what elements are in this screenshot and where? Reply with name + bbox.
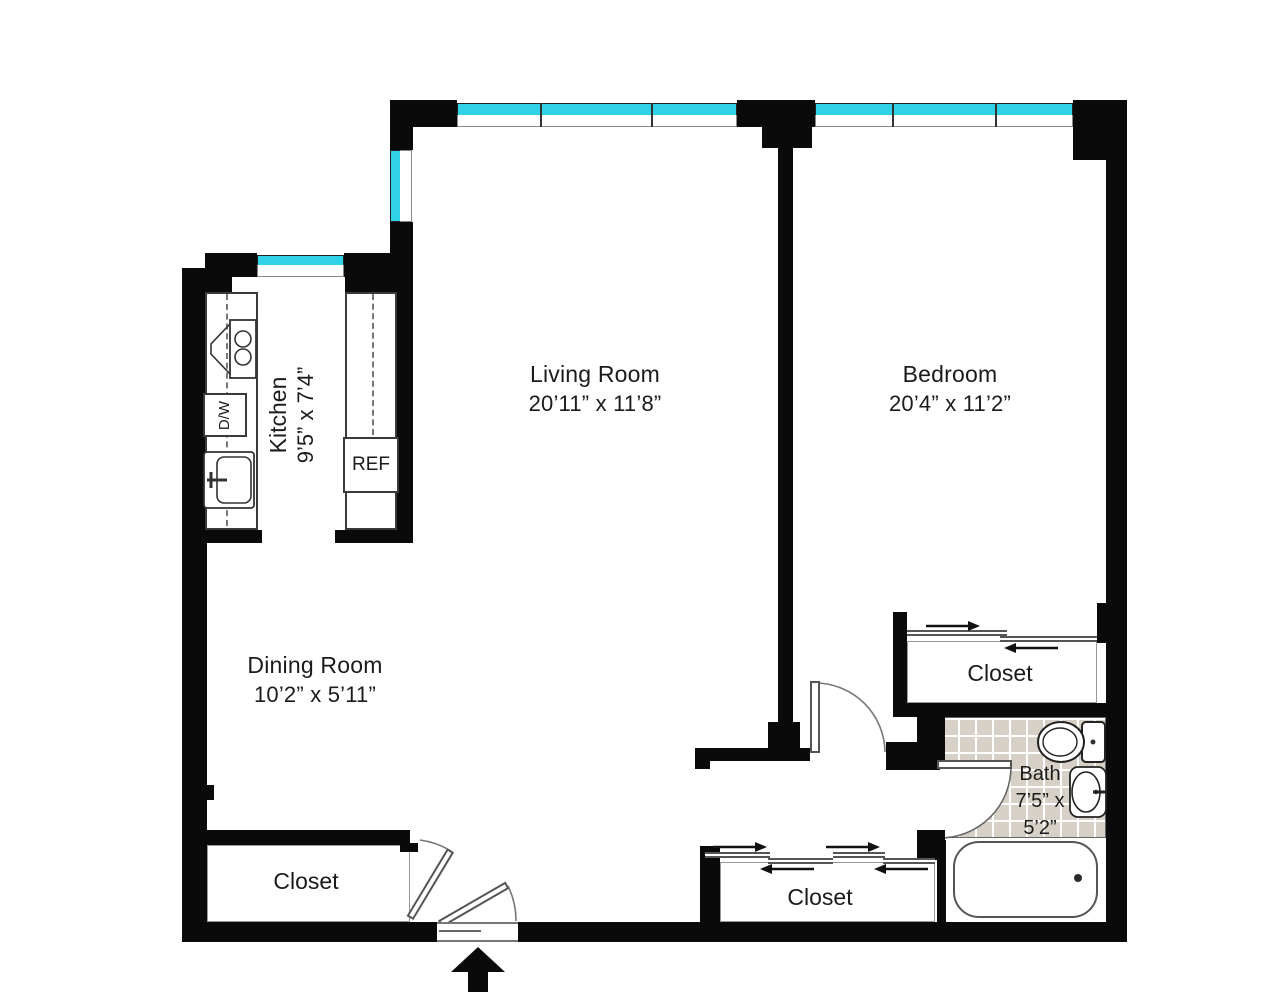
range-icon	[205, 318, 258, 380]
wall-segment	[182, 530, 262, 543]
room-name: Dining Room	[165, 651, 465, 680]
wall-segment-living-bedroom-divider	[778, 148, 793, 722]
window-mullion	[651, 103, 653, 127]
wall-segment	[903, 703, 1106, 717]
bedroom-label: Bedroom 20’4” x 11’2”	[800, 360, 1100, 418]
living-room-label: Living Room 20’11” x 11’8”	[445, 360, 745, 418]
window-mullion	[540, 103, 542, 127]
wall-segment	[1073, 127, 1106, 160]
wall-segment	[205, 253, 257, 277]
floor-plan: D/W REF L	[0, 0, 1285, 1000]
kitchen-counter-right	[345, 292, 397, 530]
room-dims-line1: 7’5” x	[980, 788, 1100, 815]
wall-segment	[344, 253, 413, 277]
slide-arrow-right-icon	[826, 841, 880, 853]
wall-segment	[205, 830, 410, 845]
refrigerator: REF	[343, 437, 399, 493]
wall-segment	[937, 840, 946, 922]
wall-segment	[345, 277, 413, 292]
window-mullion	[995, 103, 997, 127]
wall-segment	[390, 100, 457, 127]
room-dims-line2: 5’2”	[980, 815, 1100, 842]
wall-segment	[205, 277, 232, 292]
slide-arrow-right-icon	[926, 620, 980, 632]
bedroom-door-leaf	[810, 681, 820, 753]
wall-segment	[1097, 603, 1106, 643]
wall-segment	[205, 785, 214, 800]
wall-segment	[335, 530, 413, 543]
bedroom-door-arc	[816, 683, 885, 752]
slide-arrow-left-icon	[874, 863, 928, 875]
entry-door-arc	[508, 886, 516, 921]
entry-arrow-stem	[468, 971, 488, 992]
wall-segment	[390, 127, 413, 150]
refrigerator-label: REF	[352, 454, 390, 476]
living-room-side-window	[390, 150, 412, 222]
wall-segment-bottom	[518, 922, 1127, 942]
wall-segment	[695, 761, 710, 769]
dining-room-label: Dining Room 10’2” x 5’11”	[165, 651, 465, 709]
room-name: Bath	[980, 761, 1100, 788]
room-dims: 20’4” x 11’2”	[800, 389, 1100, 418]
slide-arrow-left-icon	[760, 863, 814, 875]
dishwasher-label: D/W	[216, 400, 233, 429]
slide-arrow-right-icon	[713, 841, 767, 853]
window-sill	[815, 115, 1073, 127]
entry-threshold	[437, 922, 518, 942]
entry-arrow-icon	[451, 947, 505, 972]
dining-closet-label: Closet	[226, 868, 386, 895]
wall-segment	[695, 748, 810, 761]
wall-segment	[397, 292, 413, 530]
room-name: Living Room	[445, 360, 745, 389]
kitchen-label: Kitchen 9’5” x 7’4”	[262, 310, 322, 520]
kitchen-window	[257, 255, 344, 277]
bedroom-closet-label: Closet	[920, 660, 1080, 687]
wall-segment	[390, 222, 413, 253]
bath-label: Bath 7’5” x 5’2”	[980, 761, 1100, 842]
hall-closet-label: Closet	[740, 884, 900, 911]
tub-drain-icon	[1074, 874, 1082, 882]
threshold-line	[439, 930, 481, 932]
upper-cabinet-dashline	[372, 294, 374, 435]
room-dims: 20’11” x 11’8”	[445, 389, 745, 418]
wall-segment	[917, 717, 945, 764]
wall-segment-right	[1106, 100, 1127, 942]
room-name: Kitchen	[264, 377, 292, 454]
slide-arrow-left-icon	[1004, 642, 1058, 654]
window-sill	[257, 265, 344, 277]
wall-segment-left	[182, 268, 207, 922]
wall-segment	[762, 127, 812, 148]
room-dims: 9’5” x 7’4”	[292, 367, 320, 464]
dishwasher: D/W	[203, 393, 247, 437]
wall-segment	[893, 612, 907, 717]
closet-door-leaf	[407, 848, 455, 920]
room-name: Bedroom	[800, 360, 1100, 389]
room-dims: 10’2” x 5’11”	[165, 680, 465, 709]
wall-segment-bottom	[182, 922, 437, 942]
wall-segment	[400, 843, 418, 852]
window-sill	[457, 115, 737, 127]
bedroom-window	[815, 103, 1073, 127]
living-room-window	[457, 103, 737, 127]
kitchen-sink-icon	[203, 451, 255, 509]
wall-segment	[737, 100, 815, 127]
entry-door-leaf	[438, 882, 510, 928]
window-mullion	[892, 103, 894, 127]
window-sill	[400, 150, 412, 222]
toilet-icon	[1035, 719, 1107, 765]
